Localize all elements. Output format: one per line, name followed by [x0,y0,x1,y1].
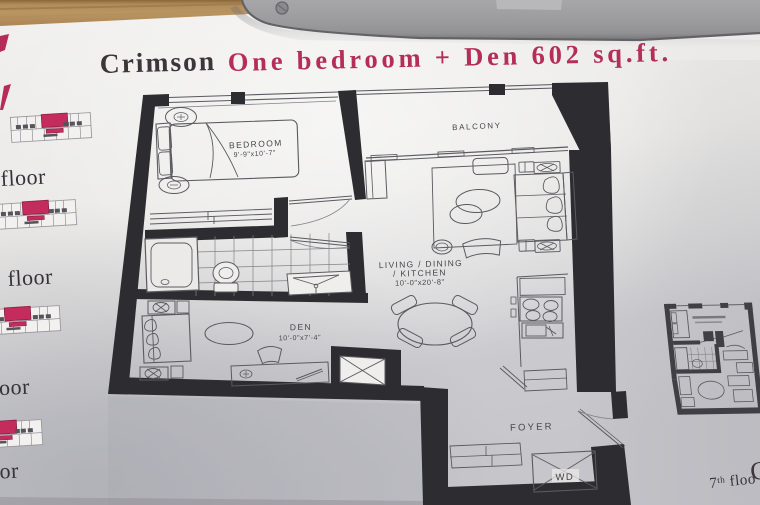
svg-text:floor: floor [0,458,20,485]
svg-text:10'-0"x20'-8": 10'-0"x20'-8" [395,277,445,287]
svg-text:floor: floor [0,164,47,191]
svg-text:FOYER: FOYER [510,421,554,434]
svg-text:WD: WD [555,472,574,484]
svg-text:DEN: DEN [290,322,312,332]
svg-text:floor: floor [0,374,31,401]
svg-text:floor: floor [7,264,54,291]
svg-text:Crimson: Crimson [99,45,216,79]
svg-text:10'-0"x7'-4": 10'-0"x7'-4" [279,335,322,343]
